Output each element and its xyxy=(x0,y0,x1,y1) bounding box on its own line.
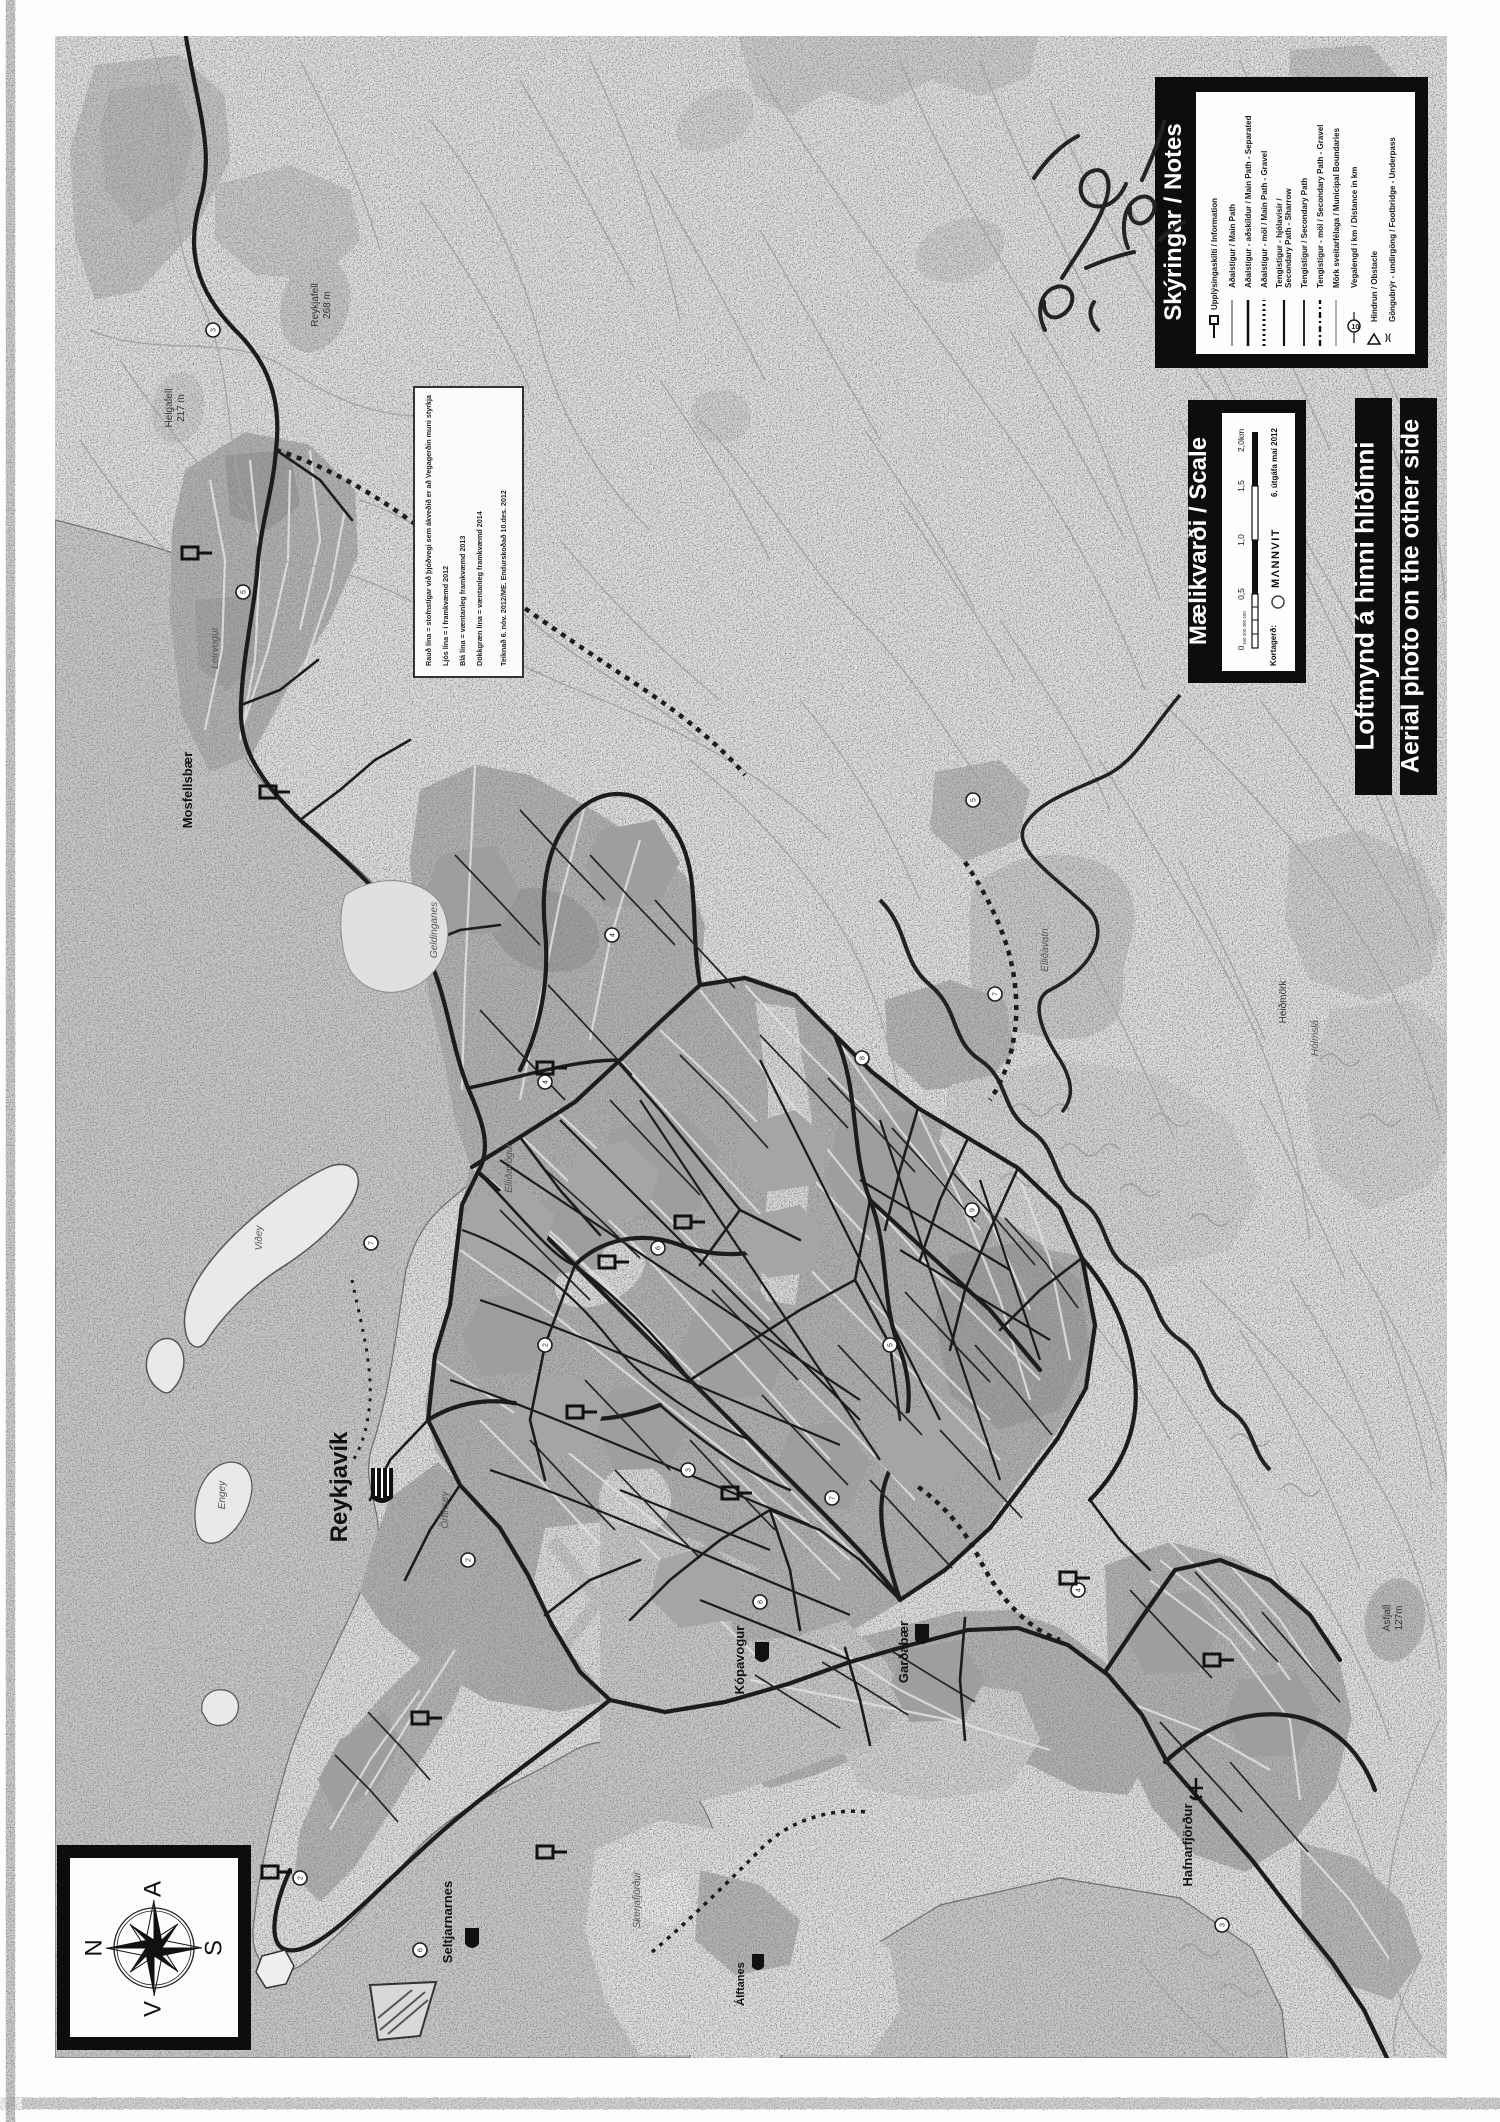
svg-text:9: 9 xyxy=(970,1208,977,1212)
svg-text:0,5: 0,5 xyxy=(1236,588,1246,600)
svg-text:1,5: 1,5 xyxy=(1236,480,1246,492)
svg-text:Örfirisey: Örfirisey xyxy=(439,1490,451,1528)
svg-text:4: 4 xyxy=(543,1080,550,1084)
svg-text:S: S xyxy=(200,1940,227,1956)
svg-text:Loftmynd á hinni hliðinni: Loftmynd á hinni hliðinni xyxy=(1350,441,1380,750)
svg-text:6. útgáfa maí 2012: 6. útgáfa maí 2012 xyxy=(1270,428,1279,497)
svg-text:Göngubrýr - undirgöng / Footbr: Göngubrýr - undirgöng / Footbridge - Und… xyxy=(1388,137,1397,322)
svg-text:3: 3 xyxy=(686,1468,693,1472)
svg-text:Kortagerð:: Kortagerð: xyxy=(1269,625,1278,666)
svg-text:Seltjarnarnes: Seltjarnarnes xyxy=(440,1881,455,1963)
svg-text:7: 7 xyxy=(369,1241,376,1245)
svg-text:Leirvogur: Leirvogur xyxy=(210,626,221,668)
svg-text:Garðabær: Garðabær xyxy=(896,1621,911,1683)
svg-text:Reykjafell: Reykjafell xyxy=(310,283,321,326)
svg-text:N: N xyxy=(80,1939,107,1956)
svg-text:Hafnarfjörður: Hafnarfjörður xyxy=(1180,1803,1195,1886)
svg-text:Aðalstígur - aðskildur / Main: Aðalstígur - aðskildur / Main Path - Sep… xyxy=(1244,115,1253,288)
svg-text:Tengistígur - hjólavísir /: Tengistígur - hjólavísir / xyxy=(1275,198,1284,288)
svg-text:Álftanes: Álftanes xyxy=(734,1962,747,2005)
svg-text:2: 2 xyxy=(298,1876,305,1880)
svg-text:Aerial photo on the other side: Aerial photo on the other side xyxy=(1397,419,1425,773)
svg-text:3: 3 xyxy=(1220,1923,1227,1927)
svg-text:Rauð lína = stofnstígar við þj: Rauð lína = stofnstígar við þjóðvegi sem… xyxy=(424,394,433,666)
svg-text:5: 5 xyxy=(241,590,248,594)
svg-text:0: 0 xyxy=(1236,645,1246,650)
svg-text:100 200 300 400: 100 200 300 400 xyxy=(1242,611,1247,645)
svg-text:Tengistígur - möl / Secondary: Tengistígur - möl / Secondary Path - Gra… xyxy=(1316,125,1325,288)
svg-text:Hindrun / Obstacle: Hindrun / Obstacle xyxy=(1370,250,1379,322)
svg-text:8: 8 xyxy=(860,1056,867,1060)
svg-text:Dökkgræn lína = væntanleg fram: Dökkgræn lína = væntanleg framkvæmd 2014 xyxy=(475,511,484,666)
svg-text:6: 6 xyxy=(656,1246,663,1250)
svg-text:Geldinganes: Geldinganes xyxy=(429,902,440,958)
svg-text:5: 5 xyxy=(971,798,978,802)
svg-text:Viðey: Viðey xyxy=(254,1225,265,1251)
svg-text:Elliðavatn: Elliðavatn xyxy=(1040,928,1051,972)
svg-text:A: A xyxy=(139,1881,166,1897)
svg-text:Helgafell: Helgafell xyxy=(164,389,175,428)
svg-text:V: V xyxy=(139,2001,166,2017)
svg-text:Mörk sveitarfélaga / Municipal: Mörk sveitarfélaga / Municipal Boundarie… xyxy=(1332,127,1341,288)
svg-text:127m: 127m xyxy=(1394,1605,1405,1630)
svg-text:Secondary Path - Sharrow: Secondary Path - Sharrow xyxy=(1284,188,1293,288)
svg-text:10: 10 xyxy=(1352,324,1360,331)
svg-text:6: 6 xyxy=(418,1948,425,1952)
svg-text:8: 8 xyxy=(758,1600,765,1604)
svg-text:2: 2 xyxy=(543,1343,550,1347)
svg-text:Aðalstígur / Main Path: Aðalstígur / Main Path xyxy=(1228,204,1237,288)
svg-text:Blá lína = væntanleg framkvæmd: Blá lína = væntanleg framkvæmd 2013 xyxy=(458,536,467,666)
svg-text:217 m: 217 m xyxy=(176,394,187,422)
svg-text:Aðalstígur - möl / Main Path -: Aðalstígur - möl / Main Path - Gravel xyxy=(1260,151,1269,288)
svg-text:Heiðmörk: Heiðmörk xyxy=(1277,980,1289,1024)
svg-text:Mælikvarði / Scale: Mælikvarði / Scale xyxy=(1185,437,1212,645)
svg-text:Engey: Engey xyxy=(217,1480,228,1509)
svg-text:Teiknað 6. nóv. 2012/ME. End: Teiknað 6. nóv. 2012/ME. Endurskoðað 10.… xyxy=(499,490,508,666)
svg-text:)(: )( xyxy=(1385,332,1391,342)
svg-text:Hólmslá: Hólmslá xyxy=(1310,1020,1321,1057)
svg-text:Reykjavík: Reykjavík xyxy=(326,1431,353,1542)
svg-text:Vegalengd í km / Distance in k: Vegalengd í km / Distance in km xyxy=(1350,167,1359,288)
svg-text:3: 3 xyxy=(211,328,218,332)
svg-text:MΛNNVIT: MΛNNVIT xyxy=(1270,528,1282,588)
svg-text:4: 4 xyxy=(1076,1588,1083,1592)
svg-text:4: 4 xyxy=(610,933,617,937)
svg-text:Ásfjall: Ásfjall xyxy=(1380,1605,1393,1632)
svg-text:5: 5 xyxy=(888,1343,895,1347)
svg-text:7: 7 xyxy=(830,1496,837,1500)
svg-text:Kópavogur: Kópavogur xyxy=(732,1626,747,1695)
svg-text:Tengistígur / Secondary Path: Tengistígur / Secondary Path xyxy=(1300,178,1309,288)
svg-text:2: 2 xyxy=(466,1558,473,1562)
svg-text:Upplýsingaskilti / Information: Upplýsingaskilti / Information xyxy=(1210,198,1219,310)
svg-text:Elliðavógur: Elliðavógur xyxy=(504,1143,515,1193)
svg-text:2,0km: 2,0km xyxy=(1236,429,1246,452)
svg-text:268 m: 268 m xyxy=(322,291,333,319)
svg-text:Skerjafjörður: Skerjafjörður xyxy=(632,1871,643,1928)
svg-text:Mosfellsbær: Mosfellsbær xyxy=(180,752,195,829)
svg-text:1,0: 1,0 xyxy=(1236,534,1246,546)
svg-text:Ljós lína = í framkvæmd 2012: Ljós lína = í framkvæmd 2012 xyxy=(441,566,450,666)
svg-text:7: 7 xyxy=(993,992,1000,996)
